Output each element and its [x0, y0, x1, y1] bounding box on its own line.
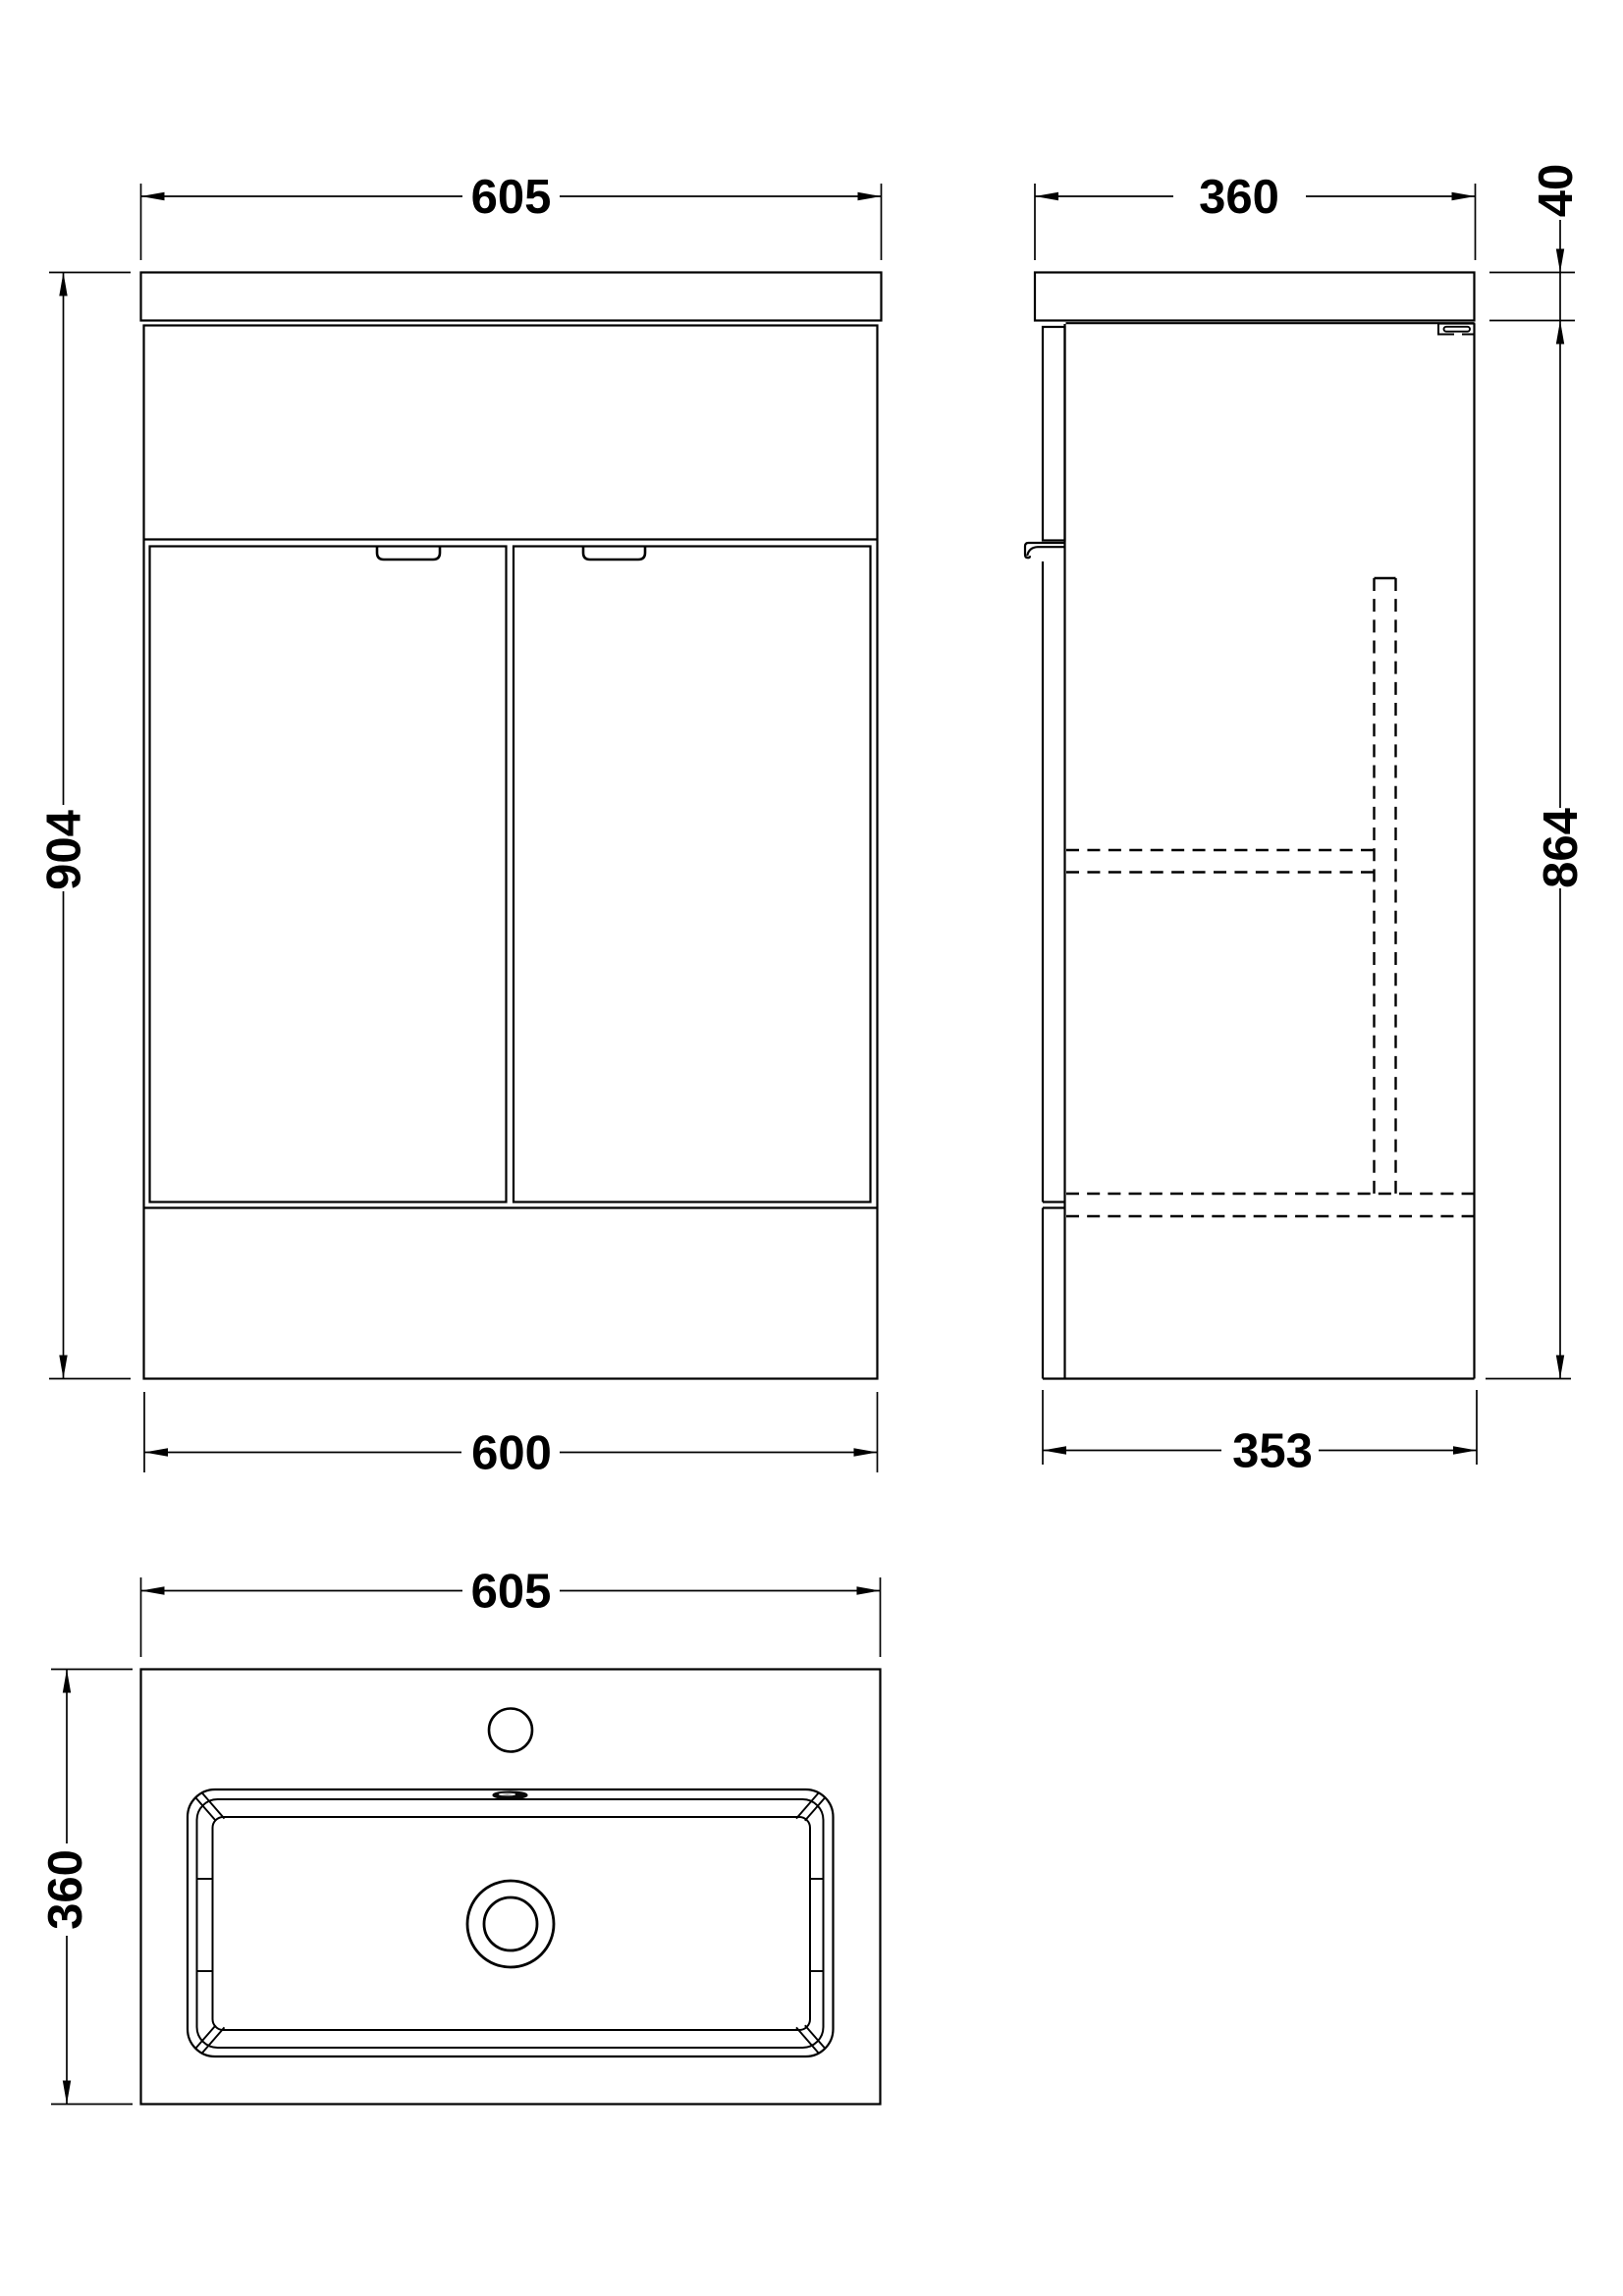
svg-text:864: 864 [1535, 808, 1588, 888]
svg-text:360: 360 [39, 1849, 92, 1930]
svg-text:40: 40 [1530, 164, 1583, 218]
svg-text:353: 353 [1232, 1425, 1313, 1478]
svg-text:600: 600 [471, 1427, 552, 1480]
svg-text:904: 904 [38, 810, 91, 890]
svg-text:360: 360 [1199, 171, 1279, 224]
svg-text:605: 605 [471, 1566, 552, 1619]
svg-text:605: 605 [471, 171, 552, 224]
